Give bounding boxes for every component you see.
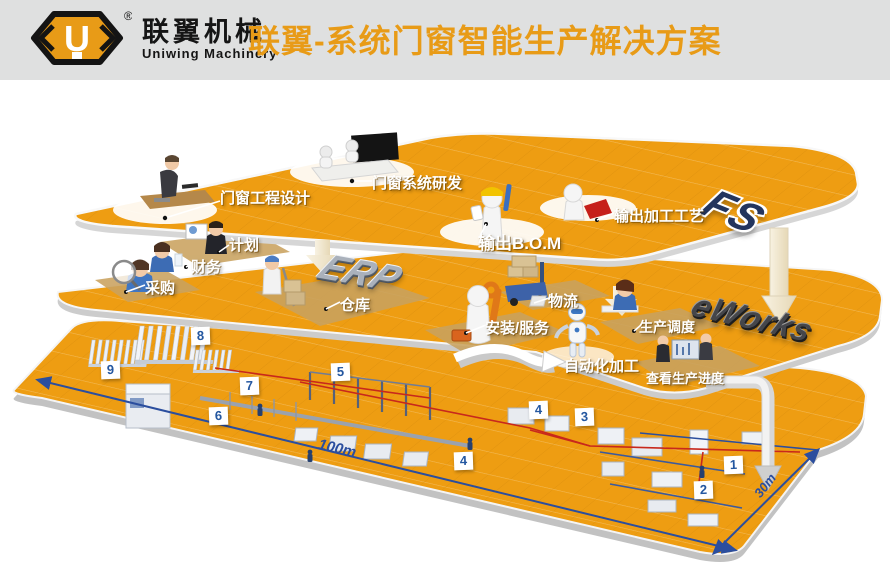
isometric-diagram: [0, 0, 890, 567]
machine-badge-3: 3: [575, 408, 595, 427]
label-warehouse: 仓库: [340, 294, 370, 315]
infographic-canvas: U ® 联翼机械 Uniwing Machinery 联翼-系统门窗智能生产解决…: [0, 0, 890, 567]
machine-badge-7: 7: [240, 377, 260, 396]
label-installation-service: 安装/服务: [485, 317, 549, 338]
label-production-scheduling: 生产调度: [639, 317, 695, 337]
machine-badge-9: 9: [101, 361, 121, 380]
label-door-window-engineering-design: 门窗工程设计: [220, 187, 310, 208]
label-door-window-system-rd: 门窗系统研发: [372, 172, 462, 193]
machine-badge-5: 5: [331, 363, 351, 382]
label-procurement: 采购: [145, 277, 175, 298]
machine-badge-4a: 4: [529, 401, 549, 420]
machine-badge-4b: 4: [454, 452, 474, 471]
label-finance: 财务: [191, 256, 221, 277]
label-automated-machining: 自动化加工: [564, 355, 639, 376]
label-view-production-progress: 查看生产进度: [646, 368, 724, 387]
machine-badge-1: 1: [724, 456, 744, 475]
machine-badge-2: 2: [694, 481, 714, 500]
label-output-bom: 输出B.O.M: [478, 229, 561, 254]
label-planning: 计划: [229, 234, 259, 255]
machine-badge-6: 6: [209, 407, 229, 426]
label-output-process: 输出加工工艺: [614, 205, 704, 226]
engineering-designer-figure: [140, 155, 215, 209]
label-logistics: 物流: [548, 290, 578, 311]
machine-badge-8: 8: [191, 327, 211, 346]
